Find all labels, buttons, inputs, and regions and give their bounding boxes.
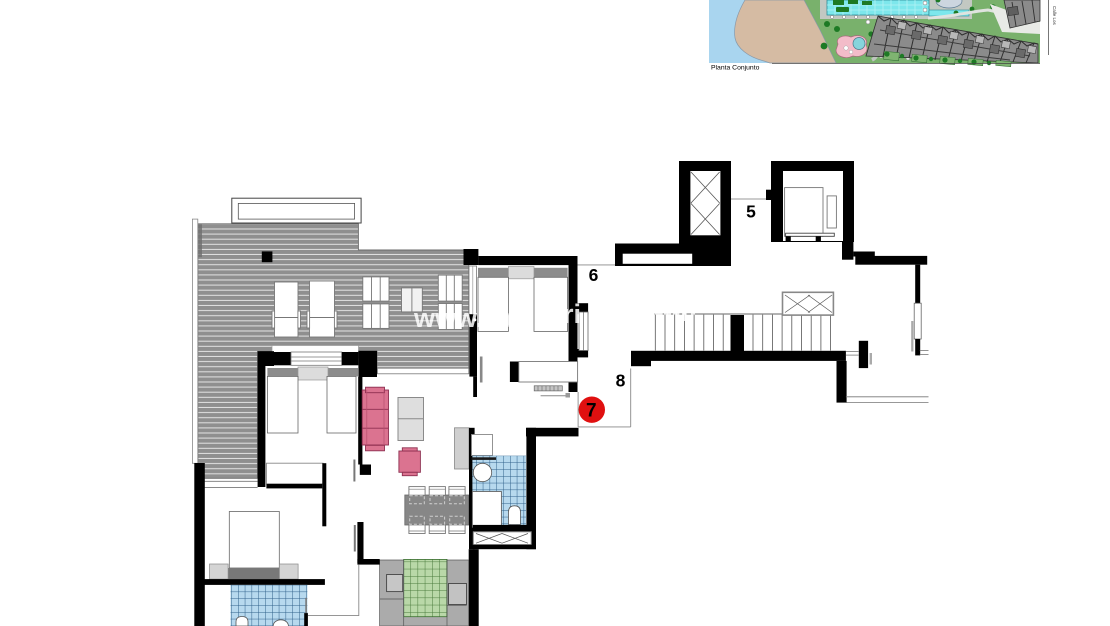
svg-text:7: 7 <box>586 401 597 422</box>
svg-text:ri: ri <box>563 299 581 329</box>
svg-text:Calle Los: Calle Los <box>1052 6 1057 26</box>
svg-text:mi: mi <box>657 297 689 327</box>
svg-text:8: 8 <box>616 371 626 391</box>
svg-text:6: 6 <box>589 265 599 285</box>
svg-text:5: 5 <box>746 202 756 222</box>
svg-text:Planta Conjunto: Planta Conjunto <box>711 65 760 72</box>
svg-text:www.lw: www.lw <box>413 303 513 333</box>
